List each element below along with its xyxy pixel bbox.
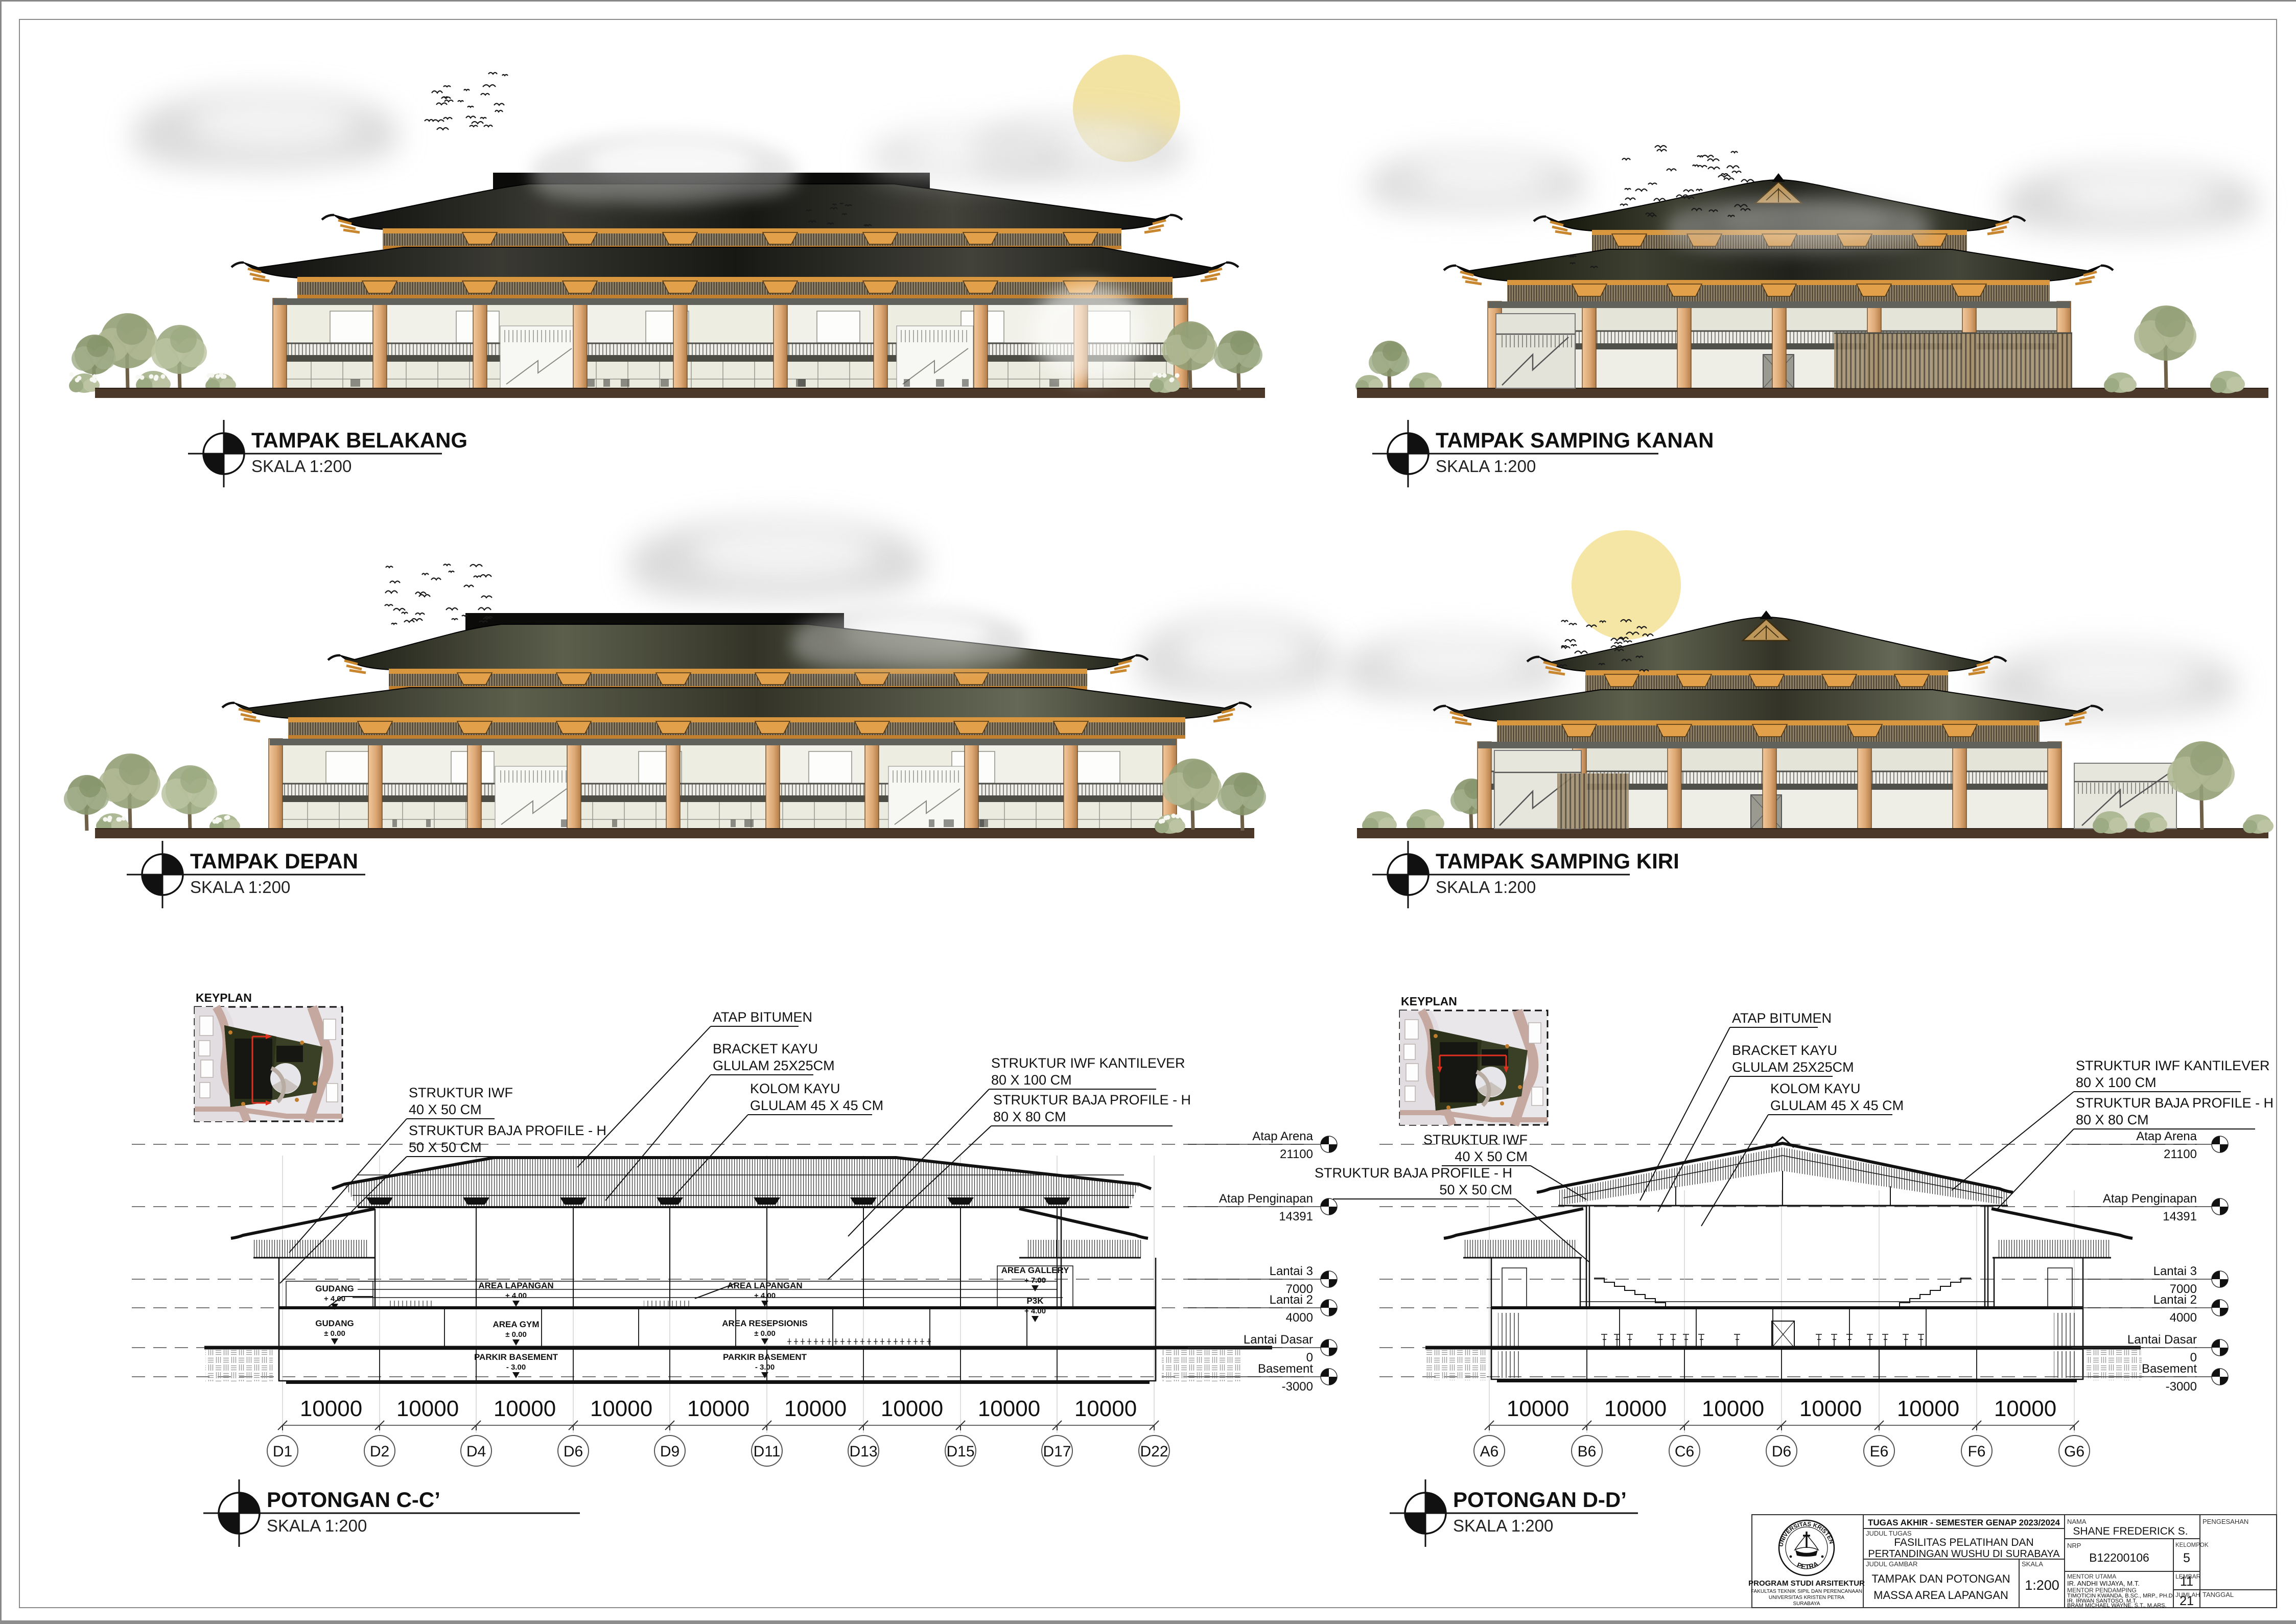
svg-text:ATAP BITUMEN: ATAP BITUMEN [713, 1009, 812, 1025]
svg-text:14391: 14391 [1279, 1210, 1313, 1223]
svg-text:TAMPAK DEPAN: TAMPAK DEPAN [190, 849, 358, 873]
svg-text:JUDUL TUGAS: JUDUL TUGAS [1866, 1529, 1912, 1537]
svg-text:- 3.00: - 3.00 [506, 1363, 526, 1372]
svg-text:± 0.00: ± 0.00 [754, 1329, 776, 1338]
svg-text:STRUKTUR BAJA PROFILE - H: STRUKTUR BAJA PROFILE - H [2076, 1095, 2274, 1111]
svg-text:10000: 10000 [881, 1396, 943, 1421]
svg-text:40 X 50 CM: 40 X 50 CM [1455, 1149, 1528, 1164]
svg-text:10000: 10000 [978, 1396, 1040, 1421]
svg-text:Atap Penginapan: Atap Penginapan [1219, 1192, 1313, 1206]
svg-text:TAMPAK BELAKANG: TAMPAK BELAKANG [251, 428, 467, 452]
svg-text:10000: 10000 [1897, 1396, 1959, 1421]
svg-text:KOLOM KAYU: KOLOM KAYU [750, 1081, 840, 1096]
svg-text:10000: 10000 [494, 1396, 556, 1421]
svg-text:PARKIR BASEMENT: PARKIR BASEMENT [723, 1352, 807, 1362]
svg-text:F6: F6 [1967, 1443, 1985, 1460]
svg-text:+ 4.00: + 4.00 [1024, 1307, 1046, 1315]
svg-text:+ 4.00: + 4.00 [754, 1291, 776, 1300]
svg-text:5: 5 [2183, 1551, 2190, 1565]
svg-text:10000: 10000 [1799, 1396, 1862, 1421]
svg-text:SKALA 1:200: SKALA 1:200 [190, 878, 290, 897]
svg-text:10000: 10000 [1604, 1396, 1667, 1421]
svg-text:10000: 10000 [590, 1396, 652, 1421]
svg-text:10000: 10000 [396, 1396, 459, 1421]
svg-text:STRUKTUR BAJA PROFILE - H: STRUKTUR BAJA PROFILE - H [1315, 1165, 1512, 1181]
svg-text:80 X 80 CM: 80 X 80 CM [993, 1109, 1066, 1124]
svg-text:80 X 100 CM: 80 X 100 CM [991, 1072, 1072, 1088]
svg-text:IR. ANDHI WIJAYA, M.T.: IR. ANDHI WIJAYA, M.T. [2067, 1580, 2140, 1587]
svg-text:10000: 10000 [1074, 1396, 1137, 1421]
svg-text:NAMA: NAMA [2067, 1518, 2087, 1525]
svg-text:10000: 10000 [784, 1396, 847, 1421]
svg-text:D17: D17 [1043, 1443, 1071, 1460]
svg-text:GLULAM 45 X 45 CM: GLULAM 45 X 45 CM [750, 1098, 883, 1113]
svg-text:GLULAM 25X25CM: GLULAM 25X25CM [713, 1058, 835, 1073]
svg-text:AREA RESEPSIONIS: AREA RESEPSIONIS [722, 1319, 808, 1328]
svg-text:G6: G6 [2064, 1443, 2084, 1460]
svg-text:Atap Arena: Atap Arena [2136, 1129, 2197, 1143]
svg-text:SKALA 1:200: SKALA 1:200 [1436, 457, 1536, 476]
svg-text:TAMPAK SAMPING KIRI: TAMPAK SAMPING KIRI [1436, 849, 1679, 873]
svg-text:STRUKTUR BAJA PROFILE - H: STRUKTUR BAJA PROFILE - H [993, 1092, 1191, 1108]
svg-text:50 X 50 CM: 50 X 50 CM [409, 1140, 482, 1155]
svg-text:B12200106: B12200106 [2089, 1551, 2149, 1564]
svg-text:1:200: 1:200 [2025, 1578, 2059, 1593]
svg-text:STRUKTUR IWF: STRUKTUR IWF [409, 1085, 513, 1100]
svg-text:MENTOR UTAMA: MENTOR UTAMA [2067, 1573, 2116, 1580]
svg-text:B6: B6 [1578, 1443, 1597, 1460]
svg-text:AREA LAPANGAN: AREA LAPANGAN [478, 1281, 553, 1290]
svg-text:SKALA 1:200: SKALA 1:200 [1436, 878, 1536, 897]
svg-text:FAKULTAS TEKNIK SIPIL DAN PERE: FAKULTAS TEKNIK SIPIL DAN PERENCANAAN [1751, 1589, 1862, 1594]
svg-text:AREA GYM: AREA GYM [493, 1320, 540, 1329]
svg-text:Atap Penginapan: Atap Penginapan [2103, 1192, 2197, 1206]
svg-text:D4: D4 [466, 1443, 486, 1460]
svg-text:Lantai 3: Lantai 3 [2153, 1264, 2197, 1278]
svg-text:ATAP BITUMEN: ATAP BITUMEN [1732, 1010, 1832, 1026]
svg-text:± 0.00: ± 0.00 [324, 1329, 345, 1338]
svg-text:SHANE FREDERICK S.: SHANE FREDERICK S. [2073, 1525, 2188, 1537]
svg-text:GLULAM 25X25CM: GLULAM 25X25CM [1732, 1060, 1854, 1075]
svg-text:STRUKTUR IWF: STRUKTUR IWF [1423, 1132, 1528, 1147]
svg-text:Lantai 3: Lantai 3 [1270, 1264, 1313, 1278]
svg-text:14391: 14391 [2163, 1210, 2197, 1223]
svg-text:POTONGAN D-D’: POTONGAN D-D’ [1453, 1488, 1627, 1512]
svg-text:C6: C6 [1675, 1443, 1694, 1460]
svg-text:D13: D13 [849, 1443, 877, 1460]
svg-text:STRUKTUR IWF KANTILEVER: STRUKTUR IWF KANTILEVER [991, 1055, 1185, 1071]
svg-text:Basement: Basement [2142, 1362, 2197, 1376]
svg-text:KEYPLAN: KEYPLAN [1401, 995, 1457, 1008]
svg-text:10000: 10000 [1702, 1396, 1764, 1421]
svg-text:GUDANG: GUDANG [315, 1319, 354, 1328]
svg-text:80 X 100 CM: 80 X 100 CM [2076, 1075, 2157, 1090]
svg-text:KELOMPOK: KELOMPOK [2175, 1542, 2209, 1548]
svg-text:D11: D11 [754, 1443, 781, 1460]
svg-text:TANGGAL: TANGGAL [2203, 1591, 2234, 1598]
svg-text:TUGAS AKHIR - SEMESTER GENAP 2: TUGAS AKHIR - SEMESTER GENAP 2023/2024 [1868, 1518, 2060, 1527]
svg-text:D22: D22 [1140, 1443, 1168, 1460]
svg-text:D2: D2 [370, 1443, 389, 1460]
svg-text:21: 21 [2180, 1594, 2194, 1608]
svg-text:PROGRAM STUDI ARSITEKTUR: PROGRAM STUDI ARSITEKTUR [1748, 1579, 1865, 1588]
svg-text:40 X 50 CM: 40 X 50 CM [409, 1102, 482, 1117]
svg-text:PARKIR BASEMENT: PARKIR BASEMENT [474, 1352, 558, 1362]
svg-text:-3000: -3000 [2166, 1380, 2197, 1394]
svg-text:JUDUL GAMBAR: JUDUL GAMBAR [1866, 1560, 1917, 1568]
svg-text:D6: D6 [1772, 1443, 1791, 1460]
svg-text:KEYPLAN: KEYPLAN [196, 991, 252, 1004]
svg-text:A6: A6 [1480, 1443, 1499, 1460]
svg-text:UNIVERSITAS KRISTEN PETRA: UNIVERSITAS KRISTEN PETRA [1769, 1595, 1845, 1601]
svg-text:Lantai Dasar: Lantai Dasar [1244, 1333, 1313, 1347]
svg-text:GLULAM 45 X 45 CM: GLULAM 45 X 45 CM [1770, 1098, 1904, 1113]
svg-text:SKALA 1:200: SKALA 1:200 [1453, 1516, 1553, 1535]
svg-text:-3000: -3000 [1282, 1380, 1313, 1394]
svg-text:POTONGAN C-C’: POTONGAN C-C’ [267, 1488, 440, 1512]
svg-text:Lantai 2: Lantai 2 [2153, 1293, 2197, 1307]
svg-text:10000: 10000 [300, 1396, 362, 1421]
svg-text:Lantai Dasar: Lantai Dasar [2127, 1333, 2197, 1347]
svg-text:STRUKTUR BAJA PROFILE - H: STRUKTUR BAJA PROFILE - H [409, 1123, 606, 1138]
svg-text:P3K: P3K [1026, 1296, 1044, 1306]
svg-text:SKALA 1:200: SKALA 1:200 [251, 457, 352, 476]
svg-text:D15: D15 [946, 1443, 974, 1460]
svg-text:D9: D9 [660, 1443, 680, 1460]
svg-text:10000: 10000 [687, 1396, 749, 1421]
svg-text:KOLOM KAYU: KOLOM KAYU [1770, 1081, 1861, 1096]
svg-text:NRP: NRP [2067, 1542, 2081, 1549]
svg-text:+ 4.00: + 4.00 [505, 1291, 527, 1300]
svg-text:E6: E6 [1870, 1443, 1889, 1460]
svg-text:PENGESAHAN: PENGESAHAN [2203, 1518, 2248, 1525]
svg-text:AREA GALLERY: AREA GALLERY [1001, 1265, 1070, 1275]
svg-text:D1: D1 [273, 1443, 292, 1460]
svg-text:MASSA AREA LAPANGAN: MASSA AREA LAPANGAN [1873, 1589, 2008, 1602]
svg-text:± 0.00: ± 0.00 [505, 1330, 527, 1339]
svg-text:SKALA: SKALA [2022, 1560, 2043, 1568]
svg-text:21100: 21100 [2164, 1147, 2197, 1161]
svg-text:Lantai 2: Lantai 2 [1270, 1293, 1313, 1307]
svg-text:4000: 4000 [1286, 1311, 1313, 1325]
svg-text:Basement: Basement [1258, 1362, 1313, 1376]
svg-text:D6: D6 [564, 1443, 583, 1460]
svg-text:STRUKTUR IWF KANTILEVER: STRUKTUR IWF KANTILEVER [2076, 1058, 2270, 1073]
svg-text:11: 11 [2180, 1574, 2193, 1589]
svg-text:+ 4.00: + 4.00 [324, 1295, 345, 1303]
svg-text:10000: 10000 [1994, 1396, 2056, 1421]
svg-text:21100: 21100 [1280, 1147, 1313, 1161]
svg-text:GUDANG: GUDANG [315, 1284, 354, 1293]
svg-text:- 3.00: - 3.00 [755, 1363, 775, 1372]
svg-text:4000: 4000 [2170, 1311, 2197, 1325]
svg-text:Atap Arena: Atap Arena [1252, 1129, 1313, 1143]
svg-text:SURABAYA: SURABAYA [1793, 1601, 1820, 1607]
svg-text:FASILITAS PELATIHAN DAN: FASILITAS PELATIHAN DAN [1894, 1537, 2033, 1548]
svg-text:TAMPAK SAMPING KANAN: TAMPAK SAMPING KANAN [1436, 428, 1714, 452]
svg-text:80 X 80 CM: 80 X 80 CM [2076, 1112, 2149, 1127]
svg-text:10000: 10000 [1507, 1396, 1569, 1421]
svg-text:+ 7.00: + 7.00 [1024, 1276, 1046, 1285]
svg-text:SKALA 1:200: SKALA 1:200 [267, 1516, 367, 1535]
svg-text:BRACKET KAYU: BRACKET KAYU [713, 1041, 818, 1056]
svg-text:BRACKET KAYU: BRACKET KAYU [1732, 1043, 1837, 1058]
svg-text:PERTANDINGAN WUSHU DI SURABAYA: PERTANDINGAN WUSHU DI SURABAYA [1868, 1548, 2060, 1560]
svg-text:BRAM MICHAEL WAYNE, S.T., M.AR: BRAM MICHAEL WAYNE, S.T., M.ARS. [2067, 1603, 2167, 1609]
svg-text:AREA LAPANGAN: AREA LAPANGAN [727, 1281, 802, 1290]
svg-text:50 X 50 CM: 50 X 50 CM [1439, 1182, 1512, 1197]
svg-text:TAMPAK DAN POTONGAN: TAMPAK DAN POTONGAN [1871, 1572, 2010, 1585]
